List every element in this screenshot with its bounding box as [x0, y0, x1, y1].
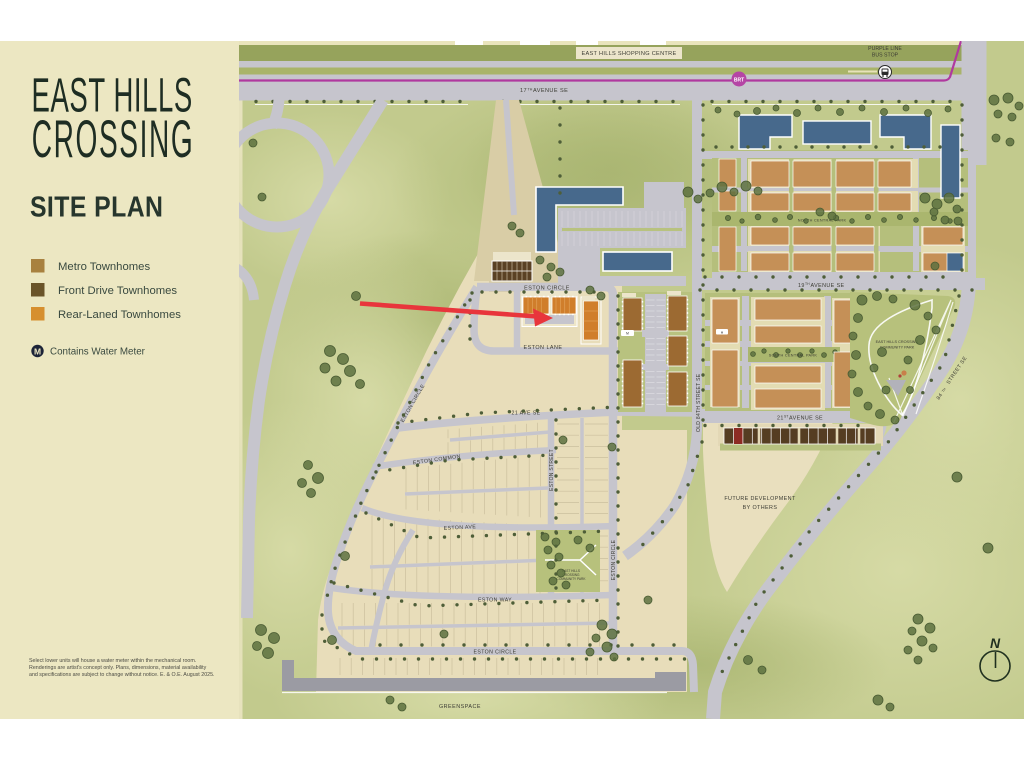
svg-text:17: 17: [520, 88, 527, 94]
svg-text:SOUTH CENTRAL PARK: SOUTH CENTRAL PARK: [769, 354, 818, 358]
svg-text:ESTON CIRCLE: ESTON CIRCLE: [473, 650, 516, 656]
svg-text:AVENUE SE: AVENUE SE: [811, 283, 845, 289]
svg-text:AVENUE SE: AVENUE SE: [533, 88, 568, 94]
svg-text:Contains Water Meter: Contains Water Meter: [50, 347, 146, 358]
svg-text:Metro Townhomes: Metro Townhomes: [58, 261, 150, 273]
svg-text:TH: TH: [805, 282, 810, 286]
svg-text:BY OTHERS: BY OTHERS: [743, 505, 778, 511]
svg-text:ST: ST: [784, 415, 788, 419]
svg-text:OLD 84TH STREET SE: OLD 84TH STREET SE: [696, 373, 702, 432]
svg-text:SITE PLAN: SITE PLAN: [30, 191, 163, 223]
svg-text:ESTON LANE: ESTON LANE: [523, 345, 562, 351]
svg-text:COMMUNITY PARK: COMMUNITY PARK: [557, 577, 587, 581]
svg-text:ESTON CIRCLE: ESTON CIRCLE: [524, 286, 570, 292]
svg-text:ESTON STREET: ESTON STREET: [549, 449, 555, 491]
svg-text:ESTON WAY: ESTON WAY: [478, 598, 512, 604]
svg-text:19: 19: [798, 283, 805, 289]
svg-text:Front Drive Townhomes: Front Drive Townhomes: [58, 285, 177, 297]
svg-text:ESTON CIRCLE: ESTON CIRCLE: [611, 539, 617, 580]
svg-text:Renderings are artist's concep: Renderings are artist's concept only. Pl…: [29, 665, 207, 671]
svg-text:21: 21: [777, 416, 784, 422]
svg-text:GREENSPACE: GREENSPACE: [439, 704, 481, 710]
svg-text:Select lower units will house: Select lower units will house a water me…: [29, 658, 196, 664]
svg-text:TH: TH: [528, 87, 533, 91]
svg-text:M: M: [626, 332, 629, 336]
svg-text:BRT: BRT: [734, 77, 744, 83]
svg-text:EAST HILLS CROSSING: EAST HILLS CROSSING: [876, 340, 919, 344]
svg-text:AVENUE SE: AVENUE SE: [789, 416, 823, 422]
svg-text:PURPLE LINE: PURPLE LINE: [868, 46, 902, 52]
svg-text:and specifications are subject: and specifications are subject to change…: [29, 672, 215, 678]
svg-text:EAST HILLS SHOPPING CENTRE: EAST HILLS SHOPPING CENTRE: [581, 51, 676, 57]
svg-text:N: N: [990, 635, 1001, 651]
svg-text:M: M: [34, 346, 41, 356]
svg-text:Rear-Laned Townhomes: Rear-Laned Townhomes: [58, 309, 181, 321]
svg-text:FUTURE DEVELOPMENT: FUTURE DEVELOPMENT: [724, 496, 796, 502]
svg-text:BUS STOP: BUS STOP: [872, 53, 899, 59]
svg-text:CROSSING: CROSSING: [32, 110, 195, 169]
